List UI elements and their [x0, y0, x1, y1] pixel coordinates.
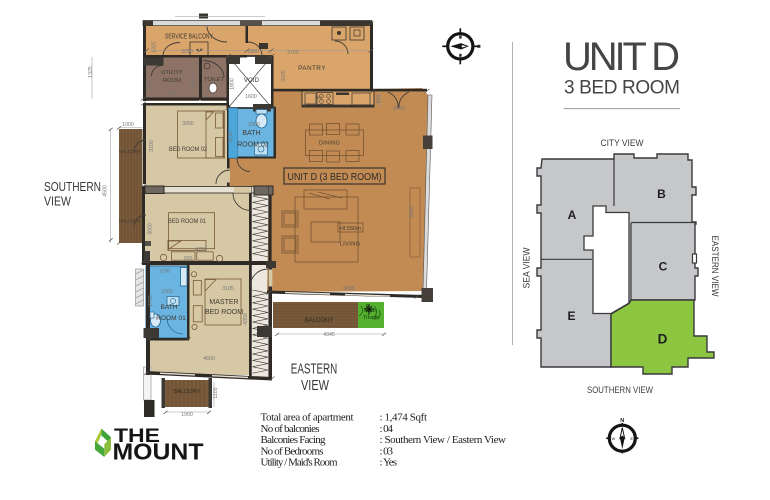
svg-text:Total area of apartment: Total area of apartment — [261, 412, 354, 424]
svg-text:3225: 3225 — [281, 70, 287, 82]
svg-text:BALCONY: BALCONY — [305, 318, 334, 324]
svg-text:VIEW: VIEW — [44, 194, 72, 209]
svg-text:1325: 1325 — [152, 41, 158, 53]
svg-text:1850: 1850 — [191, 77, 197, 89]
svg-text:EASTERN: EASTERN — [291, 361, 338, 378]
svg-text:3000: 3000 — [148, 223, 154, 235]
svg-text:VOID: VOID — [244, 77, 260, 84]
svg-text:BATH: BATH — [160, 304, 177, 311]
svg-text:BED ROOM: BED ROOM — [205, 309, 243, 316]
svg-text:2700: 2700 — [148, 295, 154, 307]
svg-text:BATH: BATH — [242, 130, 260, 137]
svg-text:BALCONY: BALCONY — [119, 219, 141, 224]
svg-text:4345: 4345 — [323, 332, 335, 338]
svg-text:E: E — [567, 309, 575, 323]
svg-text:SOUTHERN VIEW: SOUTHERN VIEW — [587, 385, 653, 395]
svg-text:DINING: DINING — [319, 141, 340, 147]
svg-text:BED ROOM 01: BED ROOM 01 — [168, 218, 206, 225]
svg-text:1100: 1100 — [213, 387, 219, 398]
svg-text:3105: 3105 — [222, 286, 234, 292]
svg-text:1000: 1000 — [122, 122, 134, 128]
svg-text:3050: 3050 — [182, 121, 194, 127]
svg-text:3050: 3050 — [181, 49, 193, 55]
svg-text:1600: 1600 — [245, 94, 257, 100]
svg-text:1525: 1525 — [147, 81, 153, 93]
svg-text:LIVING: LIVING — [340, 242, 361, 248]
svg-text:EASTERN VIEW: EASTERN VIEW — [710, 236, 720, 297]
svg-text:1325: 1325 — [88, 66, 94, 78]
svg-text:750: 750 — [315, 95, 322, 100]
svg-text:ROOM 01: ROOM 01 — [156, 315, 186, 322]
svg-text:: 03: : 03 — [380, 445, 394, 457]
svg-text:3760: 3760 — [287, 50, 299, 56]
svg-text:1800: 1800 — [247, 49, 259, 55]
svg-text:No of balconies: No of balconies — [261, 423, 320, 435]
svg-text:ROOM: ROOM — [163, 78, 181, 84]
svg-text:1800: 1800 — [230, 78, 236, 90]
svg-text:VIEW: VIEW — [301, 377, 330, 394]
svg-text:1500: 1500 — [161, 289, 173, 295]
svg-text:BALCONY: BALCONY — [119, 149, 141, 154]
svg-text:BED ROOM 02: BED ROOM 02 — [169, 146, 207, 153]
svg-text:PANTRY: PANTRY — [298, 65, 326, 72]
svg-text:ROOM 02: ROOM 02 — [237, 142, 269, 149]
svg-text:No of Bedrooms: No of Bedrooms — [261, 445, 324, 457]
svg-text:2090: 2090 — [393, 106, 405, 112]
svg-text:4600: 4600 — [203, 356, 215, 362]
svg-text:5095: 5095 — [343, 286, 355, 292]
svg-text:: 1,474 Sqft: : 1,474 Sqft — [380, 412, 428, 424]
svg-text:8100: 8100 — [409, 206, 415, 218]
svg-text:Plant: Plant — [364, 308, 376, 314]
svg-text:D: D — [658, 332, 668, 347]
svg-text:UTILITY: UTILITY — [161, 70, 183, 76]
svg-text:3100: 3100 — [149, 140, 155, 152]
svg-text:: Southern View / Eastern View: : Southern View / Eastern View — [380, 434, 507, 446]
svg-text:1800: 1800 — [248, 122, 260, 128]
svg-text:1615: 1615 — [228, 131, 234, 143]
svg-text:+8.550m: +8.550m — [339, 226, 361, 232]
svg-text:A: A — [568, 208, 577, 222]
svg-text:E: E — [631, 436, 634, 441]
svg-text:MOUNT: MOUNT — [113, 439, 204, 465]
svg-text:B: B — [657, 187, 666, 201]
svg-text:UNIT D: UNIT D — [563, 35, 680, 79]
svg-text:: 04: : 04 — [380, 423, 394, 435]
svg-text:CITY VIEW: CITY VIEW — [601, 138, 644, 148]
svg-text:Trough: Trough — [363, 315, 379, 321]
svg-text:200: 200 — [184, 256, 193, 262]
svg-text:1200: 1200 — [159, 269, 171, 275]
svg-text:MASTER: MASTER — [209, 299, 238, 306]
svg-text:4500: 4500 — [103, 185, 109, 197]
svg-text:4700: 4700 — [195, 247, 207, 253]
svg-text:4350: 4350 — [243, 313, 249, 325]
svg-text:SEA VIEW: SEA VIEW — [522, 247, 532, 288]
svg-text:3 BED ROOM: 3 BED ROOM — [564, 78, 680, 99]
svg-text:Utility / Maid's Room: Utility / Maid's Room — [261, 457, 338, 469]
svg-text:W: W — [612, 436, 616, 441]
svg-text:1900: 1900 — [181, 412, 193, 418]
svg-text:2050: 2050 — [166, 91, 178, 97]
svg-text:600: 600 — [376, 95, 382, 104]
svg-text:C: C — [659, 260, 668, 274]
svg-text:SERVICE BALCONY: SERVICE BALCONY — [165, 32, 213, 41]
svg-text:: Yes: : Yes — [380, 457, 398, 469]
svg-text:BALCONY: BALCONY — [174, 389, 201, 395]
svg-text:Balconies Facing: Balconies Facing — [261, 434, 327, 446]
svg-text:UNIT D (3 BED ROOM): UNIT D (3 BED ROOM) — [288, 171, 382, 183]
svg-text:TOILET: TOILET — [204, 77, 225, 83]
svg-text:SOUTHERN: SOUTHERN — [44, 179, 101, 194]
